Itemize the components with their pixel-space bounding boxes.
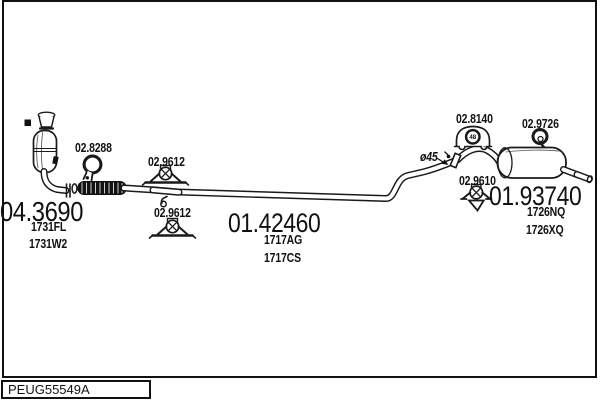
rear-silencer-oe-code-1: 1726NQ xyxy=(527,206,565,219)
rear-clamp-size-label: 48 xyxy=(469,134,476,141)
front-clamp-icon xyxy=(84,156,101,180)
rear-silencer-oe-code-2: 1726XQ xyxy=(526,224,564,237)
front-clamp-label: 02.8288 xyxy=(75,142,112,155)
mid-bracket-lower-icon xyxy=(150,219,196,239)
catalog-code: PEUG55549A xyxy=(3,382,149,397)
mid-bracket-lower-label: 02.9612 xyxy=(154,207,191,220)
pipe-diameter-label: ø45 xyxy=(420,151,438,164)
rear-hanger-top-icon xyxy=(533,130,547,144)
catalyst-oe-code-2: 1731W2 xyxy=(29,238,67,251)
rear-silencer-drawing xyxy=(498,142,594,184)
exhaust-diagram-panel: 48 02.8288 02.9612 02.9612 02.8140 02.97… xyxy=(0,0,600,400)
rear-clamp-label: 02.8140 xyxy=(456,113,493,126)
rear-clamp-icon: 48 xyxy=(455,127,492,150)
centre-pipe-oe-code-2: 1717CS xyxy=(264,252,301,265)
mid-bracket-upper-label: 02.9612 xyxy=(148,156,185,169)
catalyst-oe-code-1: 1731FL xyxy=(31,221,66,234)
catalog-code-box: PEUG55549A xyxy=(1,380,151,399)
centre-pipe-oe-code-1: 1717AG xyxy=(264,234,302,247)
catalytic-converter-drawing xyxy=(25,112,77,197)
flex-pipe-drawing xyxy=(78,181,127,195)
rear-hanger-bottom-icon xyxy=(461,185,492,211)
rear-hanger-top-label: 02.9726 xyxy=(522,118,559,131)
